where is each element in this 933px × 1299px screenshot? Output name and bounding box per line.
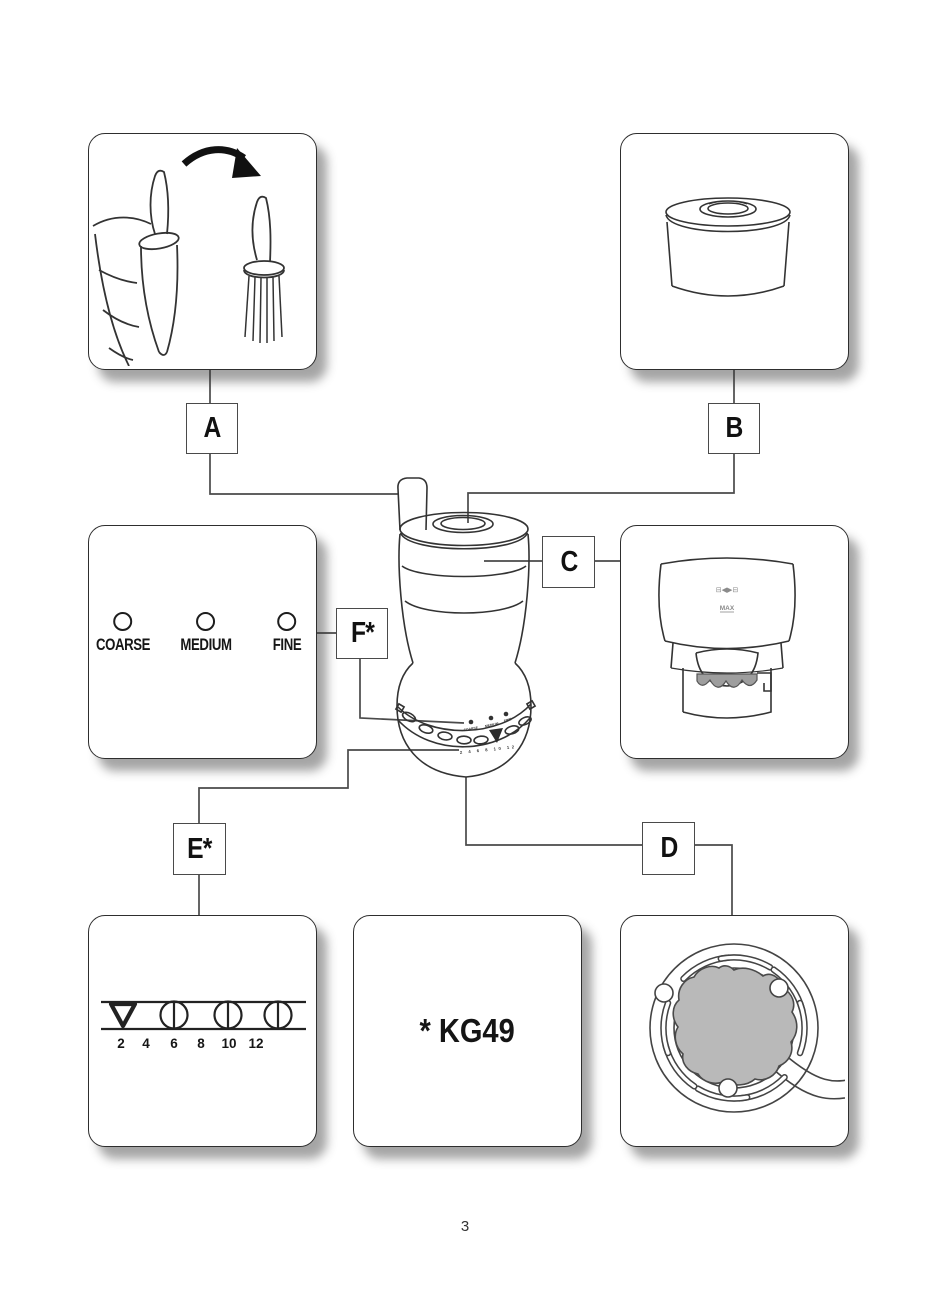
model-label: * KG49: [420, 1012, 515, 1050]
medium-indicator-circle: [196, 612, 215, 631]
brush-illustration: [89, 134, 313, 366]
grind-option-fine: FINE: [269, 612, 305, 655]
callout-f: F*: [336, 608, 388, 659]
grinder-dial-label-medium: MEDIUM: [485, 721, 499, 728]
qty-12: 12: [248, 1036, 263, 1051]
scale-pointer-triangle: [111, 1004, 135, 1026]
fine-indicator-circle: [278, 612, 297, 631]
qty-10: 10: [221, 1036, 236, 1051]
grinder-dial-label-fine: FINE: [503, 717, 512, 723]
stored-brush-handle: [151, 171, 169, 234]
grind-option-medium: MEDIUM: [174, 612, 238, 655]
callout-a-label: A: [204, 412, 221, 445]
box-quantity-scale: 2 4 6 8 10 12: [88, 915, 317, 1147]
qty-8: 8: [197, 1036, 205, 1051]
grinder-dial-numbers: 2 4 6 8 10 12: [460, 744, 517, 755]
callout-e: E*: [173, 823, 226, 875]
callout-f-label: F*: [351, 617, 374, 650]
container-max-label: MAX: [720, 605, 735, 612]
qty-4: 4: [142, 1036, 150, 1051]
grinder-dial-label-coarse: COARSE: [463, 726, 479, 733]
manual-page: COARSE MEDIUM FINE 2 4 6 8 10 12: [0, 0, 933, 1299]
box-brush-illustration: [88, 133, 317, 370]
callout-d: D: [642, 822, 695, 875]
qty-6: 6: [170, 1036, 178, 1051]
box-grind-settings: COARSE MEDIUM FINE: [88, 525, 317, 759]
coarse-label: COARSE: [96, 636, 150, 655]
container-lock-markings: ⊟◀▶⊟: [716, 587, 739, 594]
callout-e-label: E*: [187, 833, 211, 866]
callout-b-label: B: [726, 412, 743, 445]
quantity-scale-illustration: 2 4 6 8 10 12: [89, 916, 313, 1143]
grinder-brush-handle: [398, 478, 427, 530]
box-base-illustration: [620, 915, 849, 1147]
medium-label: MEDIUM: [180, 636, 231, 655]
lid-illustration: [621, 134, 845, 366]
cleaning-brush-handle: [253, 197, 271, 262]
cup-icons: [161, 1002, 292, 1029]
callout-b: B: [708, 403, 760, 454]
grinder-lid: [400, 513, 528, 546]
grind-option-coarse: COARSE: [89, 612, 157, 655]
callout-c-label: C: [560, 546, 577, 579]
box-lid-illustration: [620, 133, 849, 370]
callout-c: C: [542, 536, 595, 588]
grinder-illustration: COARSE MEDIUM FINE 2 4 6 8 10 12: [396, 478, 535, 777]
brush-bristles: [245, 276, 282, 343]
callout-a: A: [186, 403, 238, 454]
quantity-numbers: 2 4 6 8 10 12: [117, 1036, 263, 1051]
page-number: 3: [450, 1218, 480, 1235]
box-model: * KG49: [353, 915, 582, 1147]
callout-d-label: D: [660, 832, 677, 865]
dial-pointer-triangle: [489, 728, 503, 743]
base-illustration: [621, 916, 845, 1143]
fine-label: FINE: [273, 636, 301, 655]
power-cord: [784, 1054, 845, 1081]
coarse-indicator-circle: [114, 612, 133, 631]
qty-2: 2: [117, 1036, 125, 1051]
container-illustration: ⊟◀▶⊟ MAX: [621, 526, 845, 755]
box-container-illustration: ⊟◀▶⊟ MAX: [620, 525, 849, 759]
